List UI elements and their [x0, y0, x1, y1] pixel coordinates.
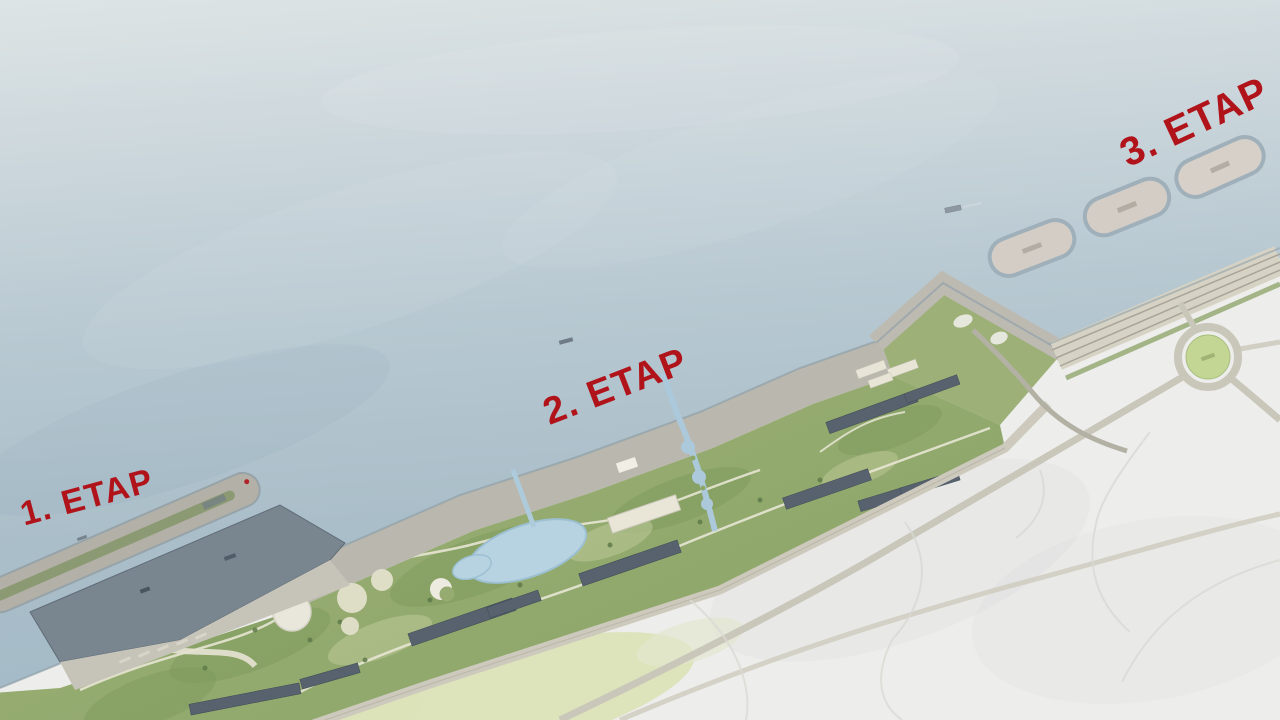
tree-dot — [818, 478, 823, 483]
stream-pool — [701, 498, 713, 510]
stream-pool — [681, 440, 695, 454]
tree-dot — [363, 658, 368, 663]
tree-dot — [428, 598, 433, 603]
tree-dot — [518, 583, 523, 588]
tree-dot — [608, 543, 613, 548]
tree-dot — [203, 666, 208, 671]
masterplan-map: 1. ETAP 2. ETAP 3. ETAP — [0, 0, 1280, 720]
stream-islet — [701, 486, 706, 491]
stream-pool — [692, 470, 706, 484]
crescent-building-cut — [440, 587, 455, 602]
tree-dot — [308, 638, 313, 643]
tree-dot — [758, 498, 763, 503]
masterplan-svg: 1. ETAP 2. ETAP 3. ETAP — [0, 0, 1280, 720]
sand-area — [371, 569, 393, 591]
tree-dot — [253, 628, 258, 633]
tree-dot — [698, 520, 703, 525]
sand-area — [341, 617, 359, 635]
stream-islet — [691, 456, 696, 461]
